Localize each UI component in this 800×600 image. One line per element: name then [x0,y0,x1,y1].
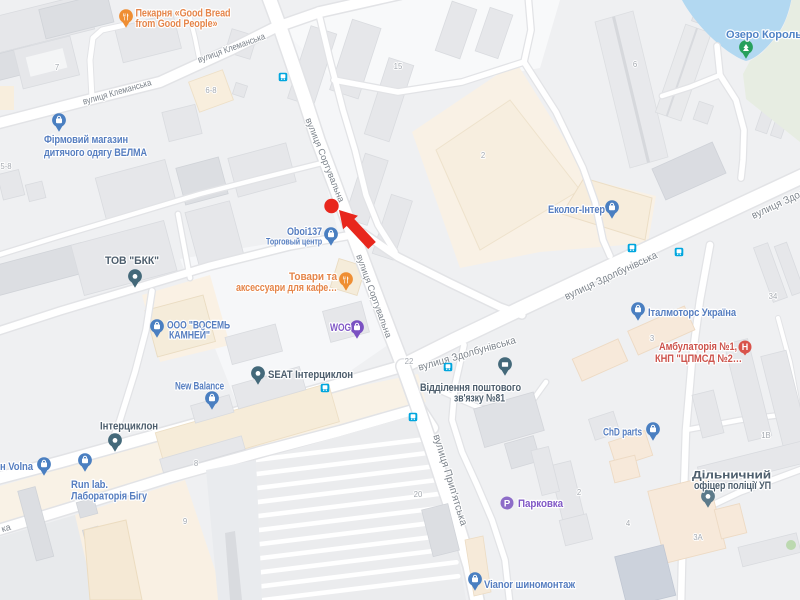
svg-text:P: P [504,498,511,509]
svg-text:SEAT Інтерциклон: SEAT Інтерциклон [268,369,353,381]
svg-text:9: 9 [183,517,187,526]
svg-text:н Volna: н Volna [0,461,34,473]
svg-text:8: 8 [194,459,198,468]
svg-text:2: 2 [577,488,581,497]
svg-text:5-8: 5-8 [0,162,11,171]
svg-text:КНП "ЦПМСД №2…: КНП "ЦПМСД №2… [655,353,742,365]
svg-text:Амбулаторія №1,: Амбулаторія №1, [659,341,737,353]
svg-text:22: 22 [405,357,414,366]
svg-text:6: 6 [633,60,637,69]
svg-text:Італмоторс Україна: Італмоторс Україна [648,307,737,319]
svg-text:Озеро Корольок: Озеро Корольок [726,29,800,41]
svg-text:Фірмовий магазин: Фірмовий магазин [44,134,128,146]
svg-text:H: H [742,342,749,352]
svg-text:офіцер поліції УП: офіцер поліції УП [694,480,771,492]
svg-text:Лабораторія Бігу: Лабораторія Бігу [71,491,148,503]
svg-text:дитячого одягу ВЕЛМА: дитячого одягу ВЕЛМА [44,147,147,159]
svg-text:20: 20 [414,490,423,499]
svg-text:New Balance: New Balance [175,381,224,393]
svg-text:Парковка: Парковка [518,498,564,510]
svg-text:Еколог-Інтер: Еколог-Інтер [548,204,605,216]
svg-text:15: 15 [394,62,403,71]
svg-text:Run lab.: Run lab. [71,479,108,491]
svg-text:ChD parts: ChD parts [603,427,642,439]
svg-text:from Good People»: from Good People» [136,18,218,30]
svg-text:6-8: 6-8 [205,86,216,95]
svg-text:Торговый центр: Торговый центр [266,236,322,247]
svg-text:ТОВ "БКК": ТОВ "БКК" [105,255,159,267]
svg-text:Vianor шиномонтаж: Vianor шиномонтаж [484,579,575,591]
svg-text:WOG: WOG [330,322,351,334]
svg-text:1В: 1В [761,431,771,440]
svg-text:34: 34 [769,292,778,301]
svg-text:3А: 3А [693,533,703,542]
svg-text:зв'язку №81: зв'язку №81 [454,393,505,405]
svg-text:3: 3 [650,334,654,343]
svg-text:аксессуари для кафе…: аксессуари для кафе… [236,282,337,294]
svg-text:Інтерциклон: Інтерциклон [100,421,158,433]
svg-text:4: 4 [626,519,631,528]
svg-text:7: 7 [55,63,59,72]
svg-text:2: 2 [481,151,485,160]
svg-text:КАМНЕЙ": КАМНЕЙ" [169,329,210,342]
